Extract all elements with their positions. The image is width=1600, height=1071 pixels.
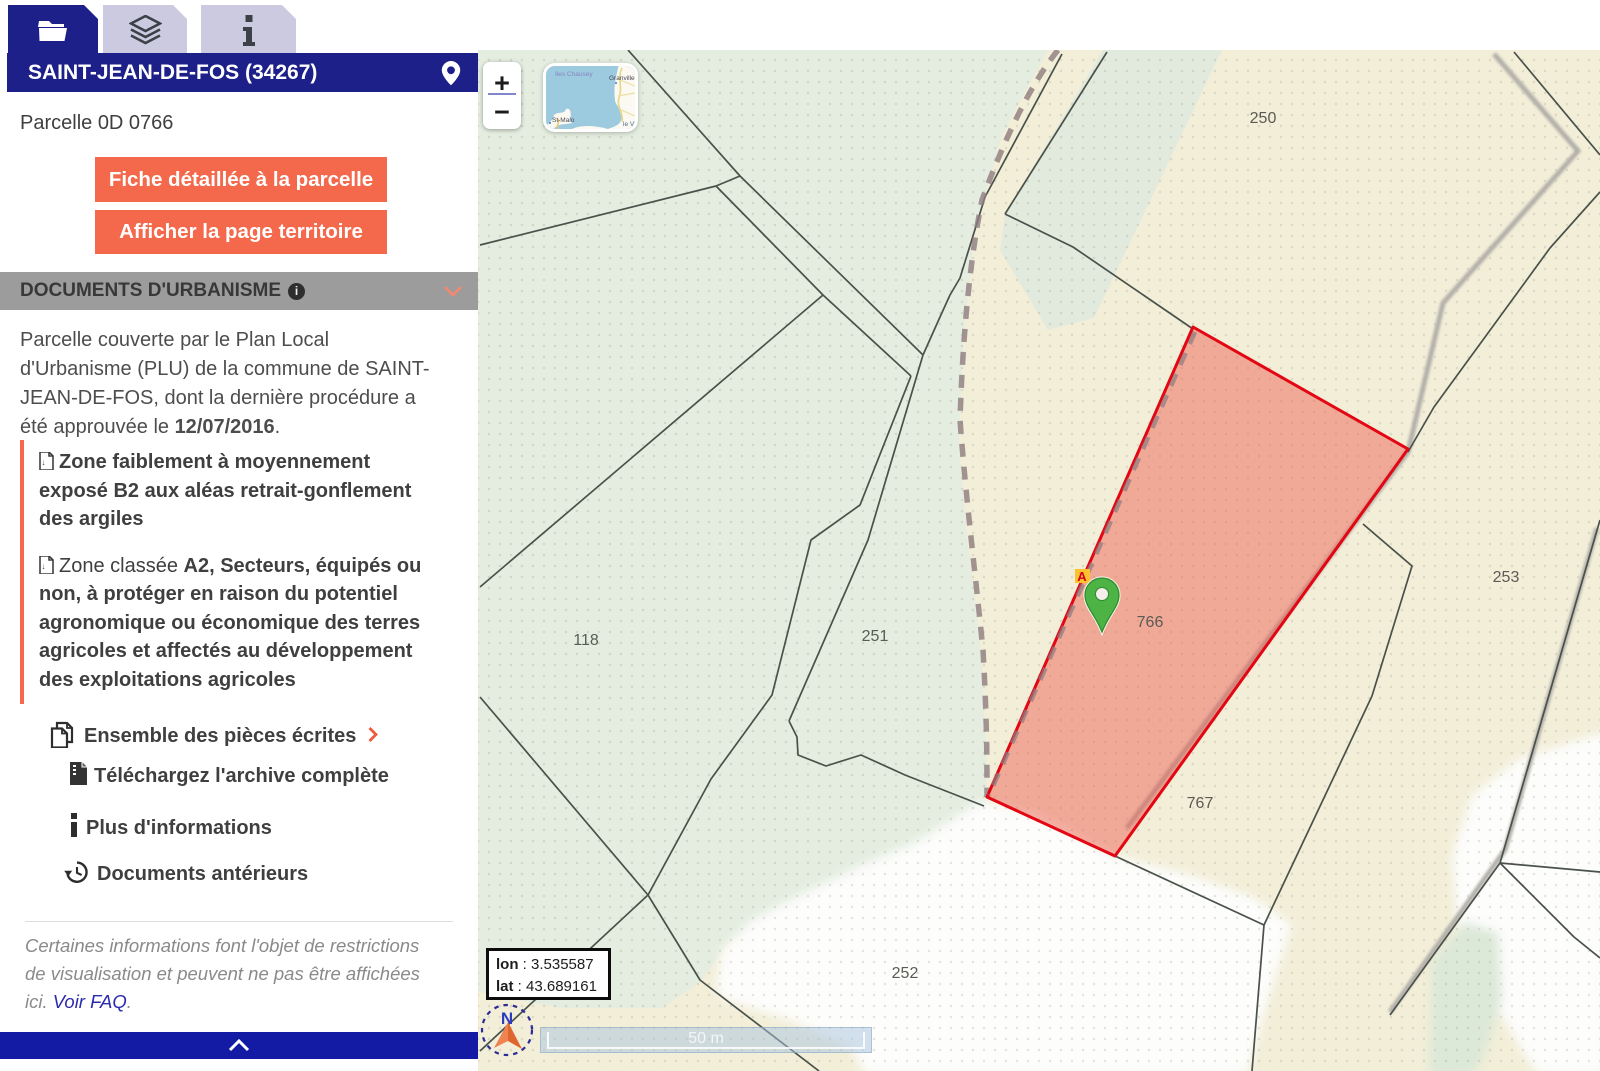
svg-text:766: 766 (1137, 614, 1164, 631)
svg-text:le Vi: le Vi (623, 121, 635, 128)
svg-text:767: 767 (1187, 795, 1214, 812)
svg-text:A: A (1077, 569, 1087, 584)
svg-text:253: 253 (1493, 569, 1520, 586)
svg-text:St-Malo: St-Malo (552, 117, 575, 124)
svg-text:252: 252 (892, 965, 919, 982)
svg-text:Iles Chausey: Iles Chausey (555, 71, 593, 78)
svg-text:251: 251 (862, 628, 889, 645)
svg-text:↓: ↓ (42, 562, 46, 571)
svg-text:↓: ↓ (42, 458, 46, 467)
svg-text:250: 250 (1250, 110, 1277, 127)
svg-text:118: 118 (573, 632, 599, 649)
svg-text:Granville: Granville (609, 75, 635, 82)
